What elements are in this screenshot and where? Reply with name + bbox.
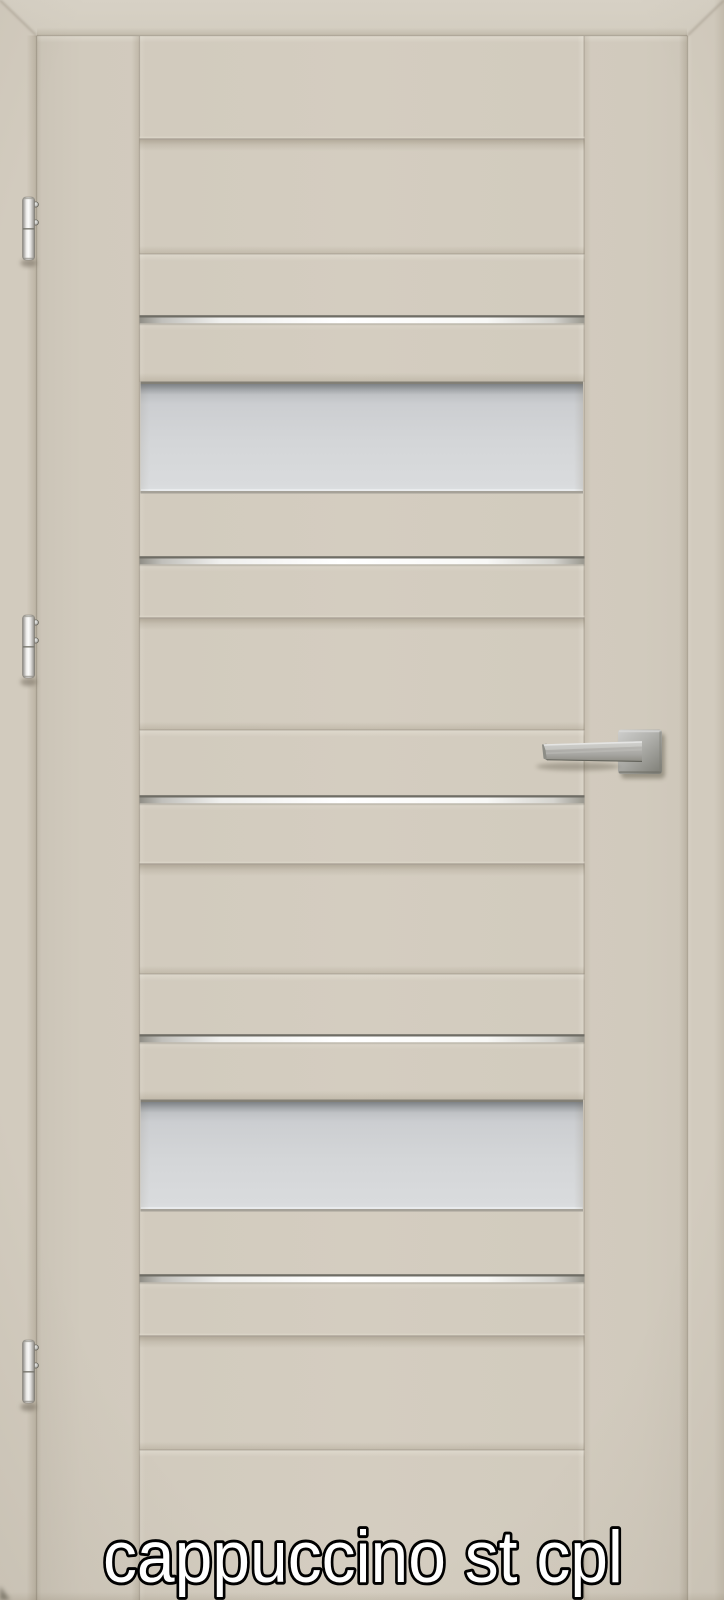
svg-text:cappuccino st cpl: cappuccino st cpl	[103, 1517, 623, 1598]
